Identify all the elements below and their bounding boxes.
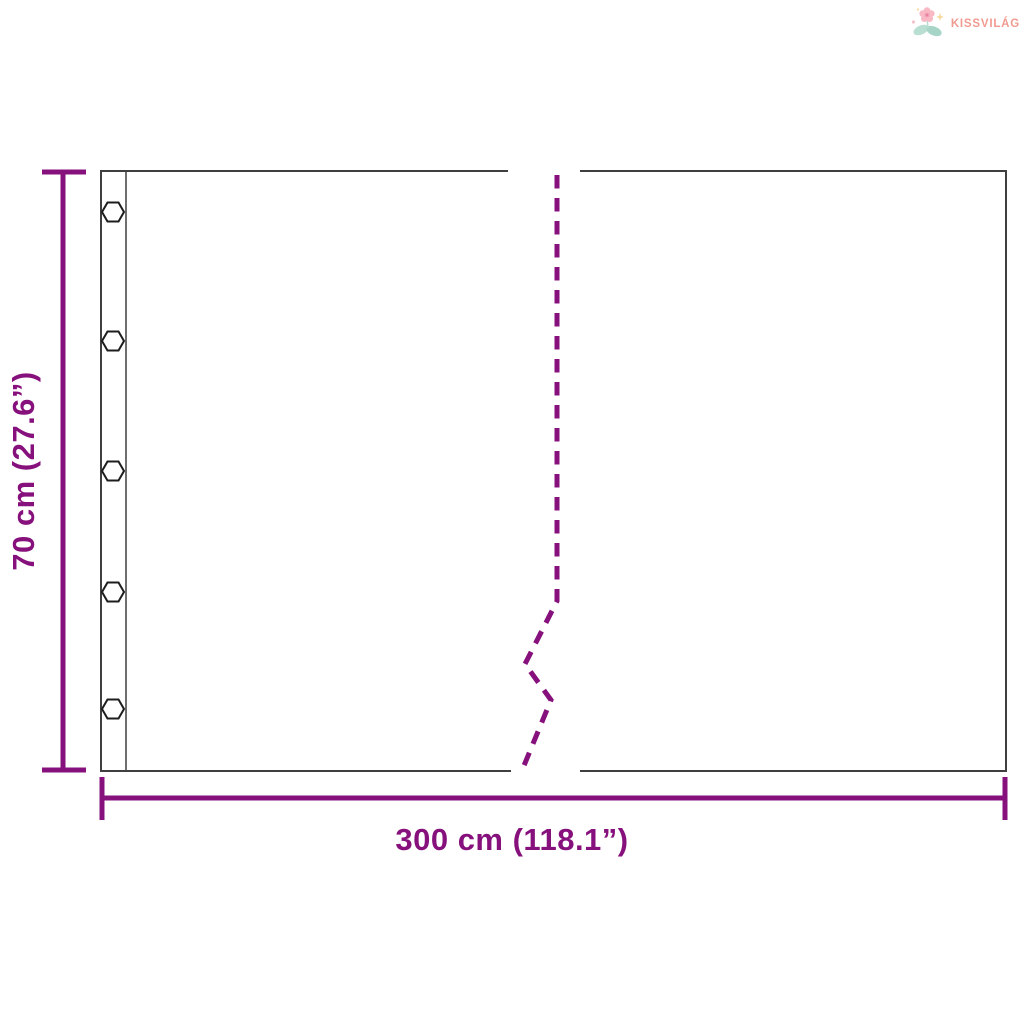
width-dimension-label: 300 cm (118.1”) <box>312 820 712 860</box>
grommet-icon <box>102 462 124 481</box>
grommet-icon <box>102 700 124 719</box>
grommet-icon <box>102 203 124 222</box>
grommet-icon <box>102 583 124 602</box>
grommets <box>102 203 124 719</box>
product-dimension-diagram: KISSVILÁG 70 cm (27.6”) <box>0 0 1024 1024</box>
break-line <box>523 175 557 768</box>
panel-outline <box>101 171 1006 771</box>
grommet-icon <box>102 332 124 351</box>
width-dimension-line <box>102 777 1005 820</box>
height-dimension-label: 70 cm (27.6”) <box>2 291 46 651</box>
diagram-canvas <box>0 0 1024 1024</box>
height-dimension-line <box>42 172 86 770</box>
